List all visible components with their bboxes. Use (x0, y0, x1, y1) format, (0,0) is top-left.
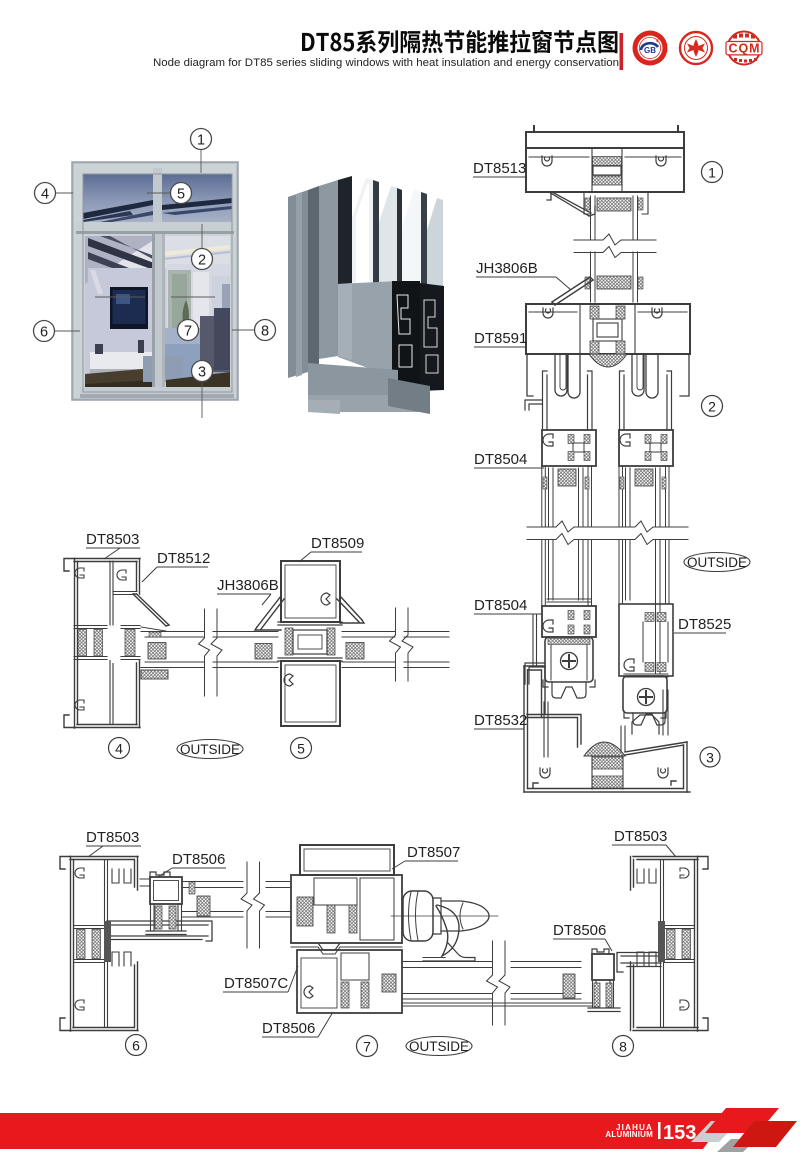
svg-text:6: 6 (40, 325, 48, 341)
svg-text:DT8506: DT8506 (262, 1020, 315, 1037)
svg-text:Node diagram for DT85 series s: Node diagram for DT85 series sliding win… (153, 57, 619, 69)
svg-text:DT8513: DT8513 (473, 160, 526, 177)
svg-text:DT8525: DT8525 (678, 616, 731, 633)
svg-text:ALUMINIUM: ALUMINIUM (605, 1130, 653, 1139)
svg-text:DT8503: DT8503 (614, 828, 667, 845)
svg-text:5: 5 (297, 741, 305, 757)
svg-text:DT8509: DT8509 (311, 535, 364, 552)
svg-text:DT8512: DT8512 (157, 550, 210, 567)
svg-text:DT8503: DT8503 (86, 829, 139, 846)
svg-text:3: 3 (706, 750, 714, 766)
svg-text:OUTSIDE: OUTSIDE (409, 1039, 469, 1054)
svg-text:CQM: CQM (729, 42, 760, 56)
svg-text:1: 1 (197, 133, 205, 149)
svg-text:JH3806B: JH3806B (217, 577, 279, 594)
svg-text:7: 7 (184, 324, 192, 340)
svg-text:DT8532: DT8532 (474, 712, 527, 729)
svg-text:1: 1 (708, 165, 716, 181)
svg-text:GB: GB (644, 46, 656, 55)
svg-text:5: 5 (177, 187, 185, 203)
svg-text:DT8506: DT8506 (172, 851, 225, 868)
svg-text:DT8591: DT8591 (474, 330, 527, 347)
svg-text:4: 4 (115, 741, 123, 757)
svg-text:DT8507C: DT8507C (224, 975, 288, 992)
svg-text:DT8507: DT8507 (407, 844, 460, 861)
svg-text:JH3806B: JH3806B (476, 260, 538, 277)
svg-text:DT8503: DT8503 (86, 531, 139, 548)
svg-text:6: 6 (132, 1038, 140, 1054)
svg-text:DT8506: DT8506 (553, 922, 606, 939)
svg-text:2: 2 (198, 253, 206, 269)
svg-text:8: 8 (619, 1039, 627, 1055)
svg-text:4: 4 (41, 187, 49, 203)
svg-text:OUTSIDE: OUTSIDE (180, 742, 240, 757)
svg-text:153: 153 (663, 1122, 696, 1144)
svg-text:DT8504: DT8504 (474, 597, 527, 614)
svg-text:DT8504: DT8504 (474, 451, 527, 468)
svg-text:OUTSIDE: OUTSIDE (687, 555, 747, 570)
svg-text:3: 3 (198, 365, 206, 381)
svg-text:8: 8 (261, 324, 269, 340)
svg-text:2: 2 (708, 399, 716, 415)
svg-text:7: 7 (363, 1039, 371, 1055)
